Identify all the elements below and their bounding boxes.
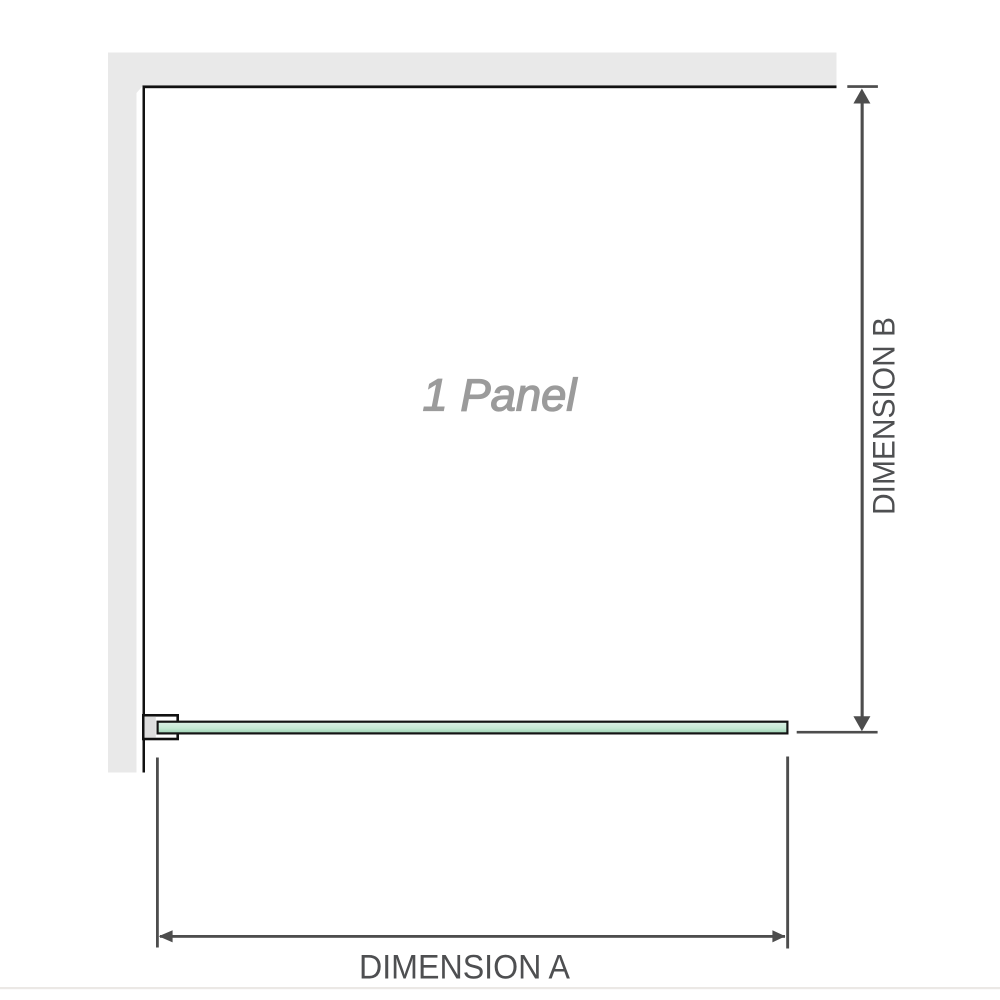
svg-text:DIMENSION A: DIMENSION A [359, 948, 570, 986]
svg-text:1 Panel: 1 Panel [423, 370, 579, 421]
svg-text:DIMENSION B: DIMENSION B [865, 317, 901, 515]
